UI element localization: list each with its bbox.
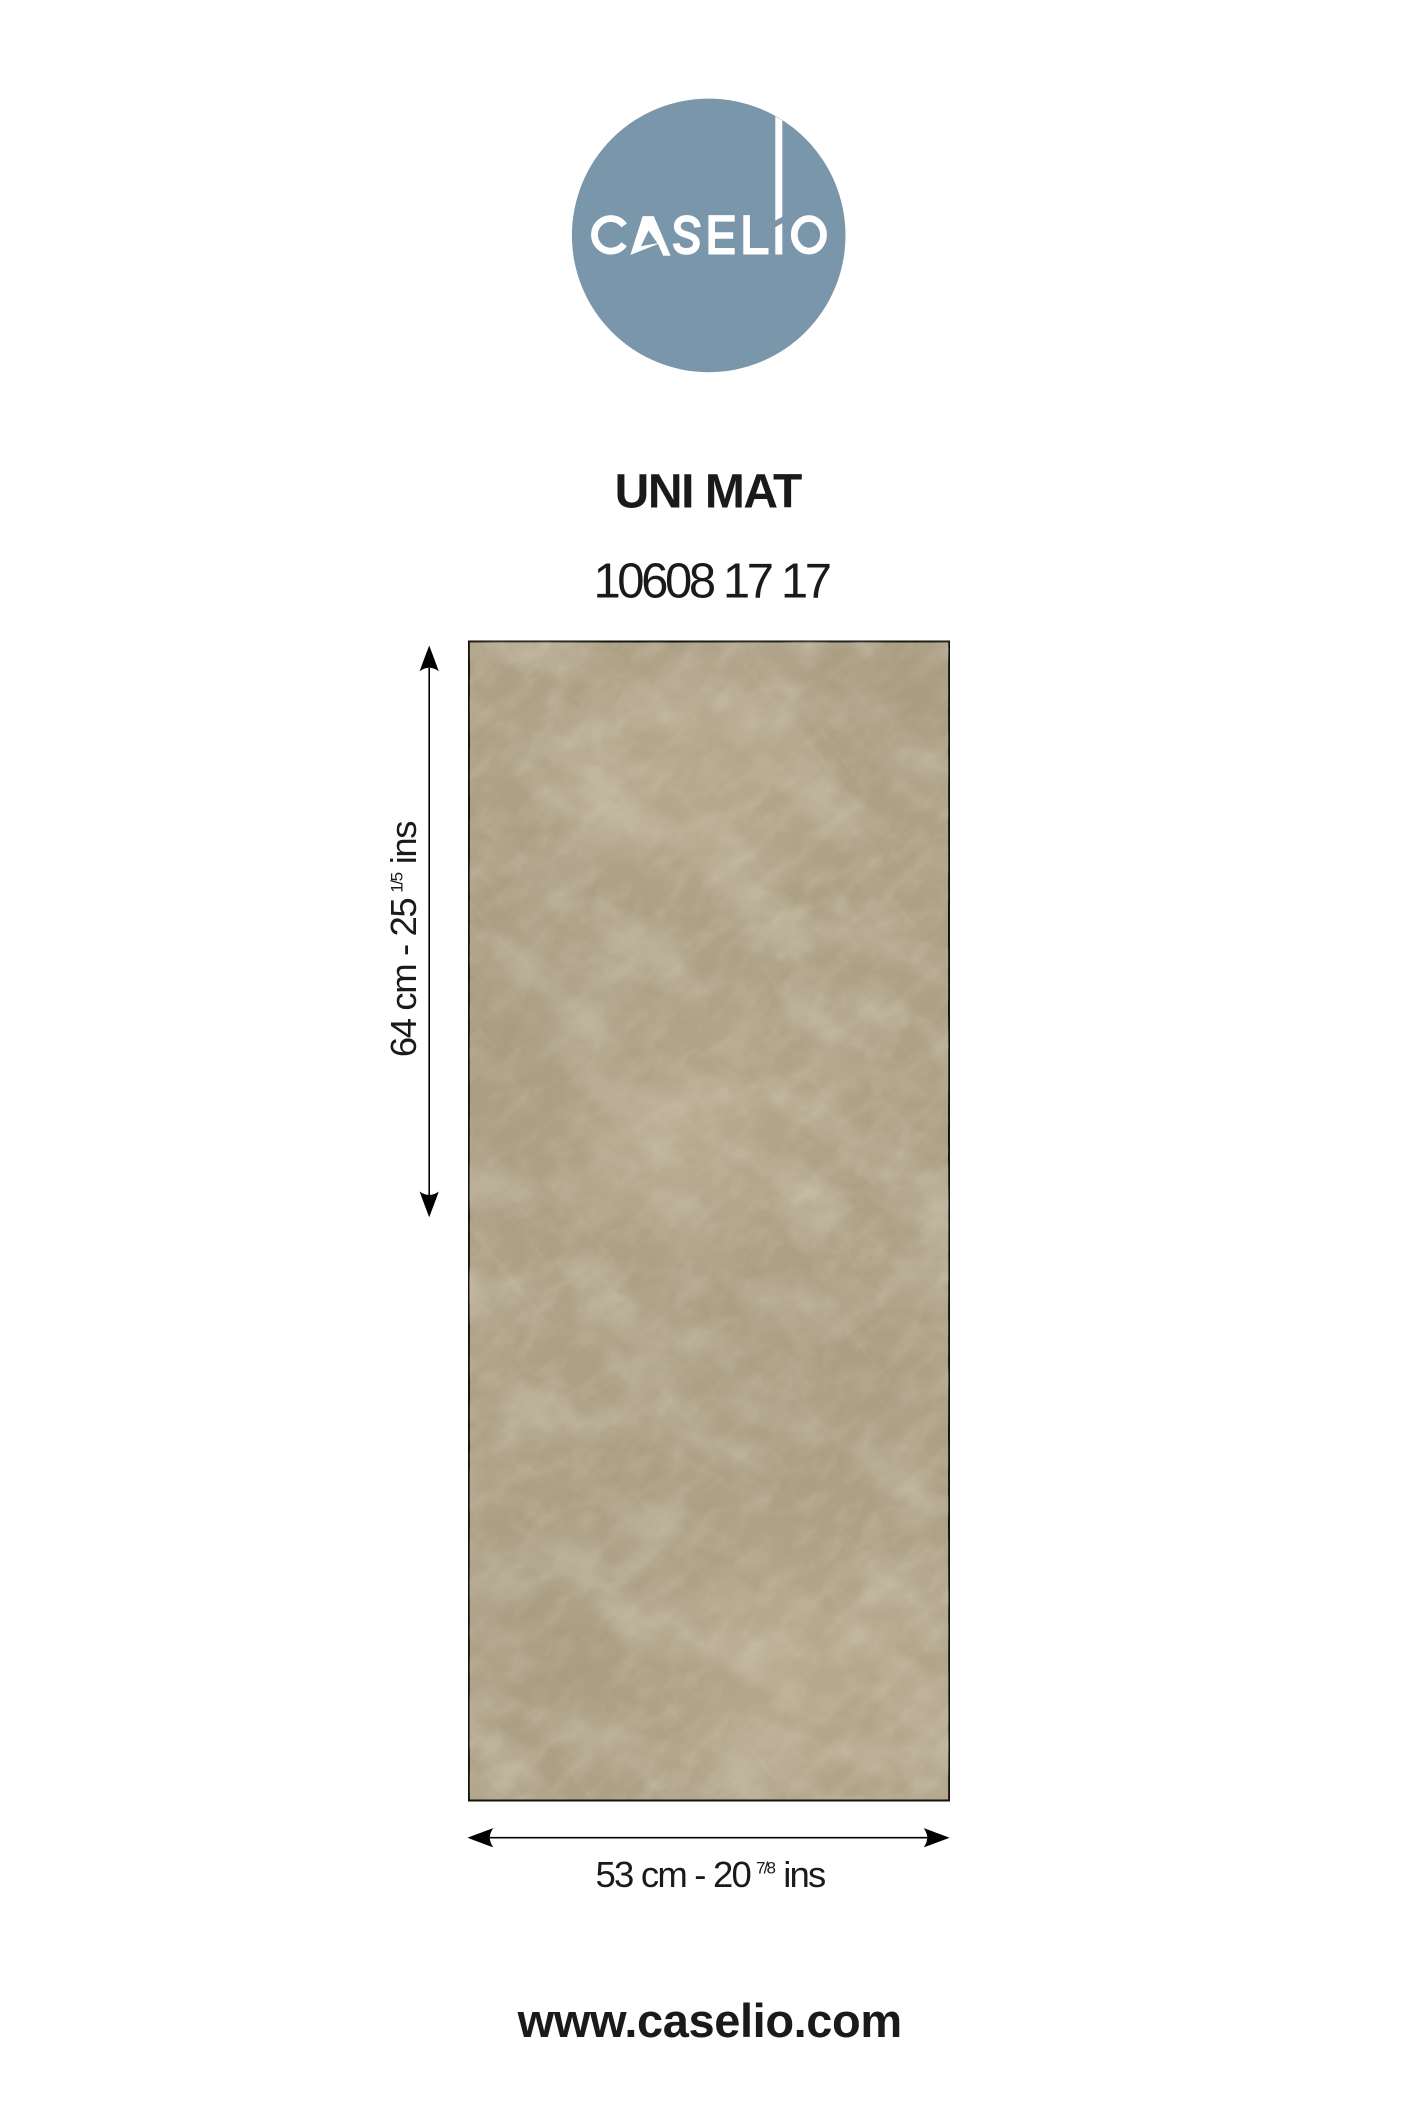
svg-text:53 cm - 207/8ins: 53 cm - 207/8ins xyxy=(596,1854,825,1895)
svg-text:UNI MAT: UNI MAT xyxy=(615,466,802,519)
svg-text:www.caselio.com: www.caselio.com xyxy=(517,1994,902,2047)
svg-text:64 cm - 251/5ins: 64 cm - 251/5ins xyxy=(383,822,424,1057)
svg-text:10608 17 17: 10608 17 17 xyxy=(593,554,829,608)
